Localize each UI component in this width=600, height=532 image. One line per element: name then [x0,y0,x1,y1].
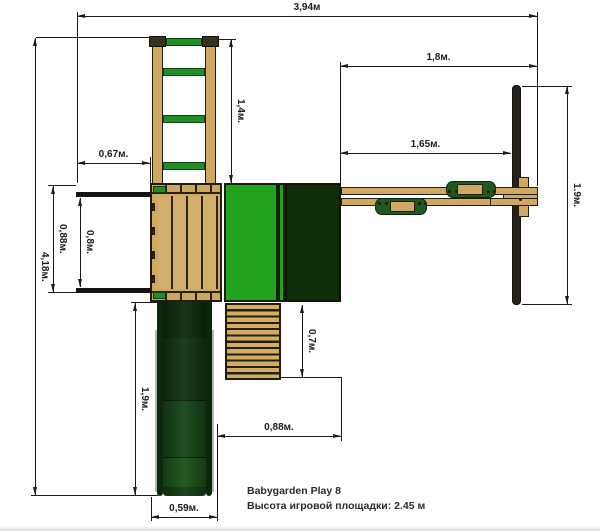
platform-corner-green-top [153,186,166,193]
extension-line [341,377,342,441]
wall-notch [152,203,155,211]
dim-label: 3,94м [77,3,537,13]
seat-hook [385,202,388,205]
seat-hook [424,202,427,205]
dim-label: 0,7м. [306,305,316,377]
platform-corner-green-bottom [153,292,166,299]
seat-hook [378,202,381,205]
extension-line [48,292,76,293]
wall-notch [152,275,155,283]
slide [155,302,214,498]
ladder-cap-right [202,36,219,47]
dim-label: 1.9м. [571,86,581,304]
caption: Babygarden Play 8 Высота игровой площадк… [247,484,425,514]
platform-deck-planks [158,196,220,289]
dim-label: 0,88м. [217,423,341,433]
dim-label: 0,88м. [57,186,67,292]
slide-shading [163,302,206,496]
dim-label: 1,9м. [139,303,149,495]
seat-hook [487,190,490,193]
wooden-steps [225,303,281,380]
roof-panel-strip [278,183,285,302]
dim-label: 4,18м. [39,38,49,495]
ladder-rung [163,162,205,170]
caption-title: Babygarden Play 8 [247,484,425,499]
dim-label: 1,65м. [340,140,511,150]
seat-hook [448,190,451,193]
caption-subtitle: Высота игровой площадки: 2.45 м [247,499,425,514]
swing-seat-front-board [390,201,415,212]
extension-line [218,39,236,40]
slide-outer-line-right [212,330,214,492]
extension-line [150,157,151,183]
swing-beam-back-over [490,187,538,195]
swing-seat-back-board [457,184,483,195]
extension-line [522,304,572,305]
ladder-rail-right [205,38,216,185]
wall-notch [152,227,155,235]
extension-line [537,12,538,186]
dim-label: 1,4м. [235,39,245,183]
seat-hook [455,190,458,193]
ladder-rung [163,115,205,123]
playground-plan-drawing: 3,94м 1,8м. 1,65м. 1,4м. 0,67м. 4,18м. [0,0,600,532]
slide-rail-right [206,302,212,496]
roof-panel-bright [224,183,278,302]
ground-shadow [0,527,600,531]
ladder-rung [166,38,202,46]
dim-label: 1,8м. [340,53,537,63]
dim-label: 0,67м. [77,150,150,160]
extension-line [36,37,152,38]
swing-beam-front-over [490,198,538,206]
extension-line [31,495,158,496]
dim-label: 0,8м. [84,198,94,287]
ladder-rail-left [152,38,163,185]
roof-panel-dark [285,183,341,302]
seat-hook [418,202,421,205]
balcony-rail-top [76,192,151,197]
seat-hook [493,190,496,193]
extension-line [340,62,341,183]
main-platform [150,183,222,302]
ladder-rung [163,68,205,76]
bracket-bolt [519,198,522,201]
wall-notch [152,251,155,259]
dim-label: 0,59м. [151,504,217,514]
extension-line [217,424,218,521]
balcony-rail-bottom [76,288,151,293]
extension-line [281,377,341,378]
